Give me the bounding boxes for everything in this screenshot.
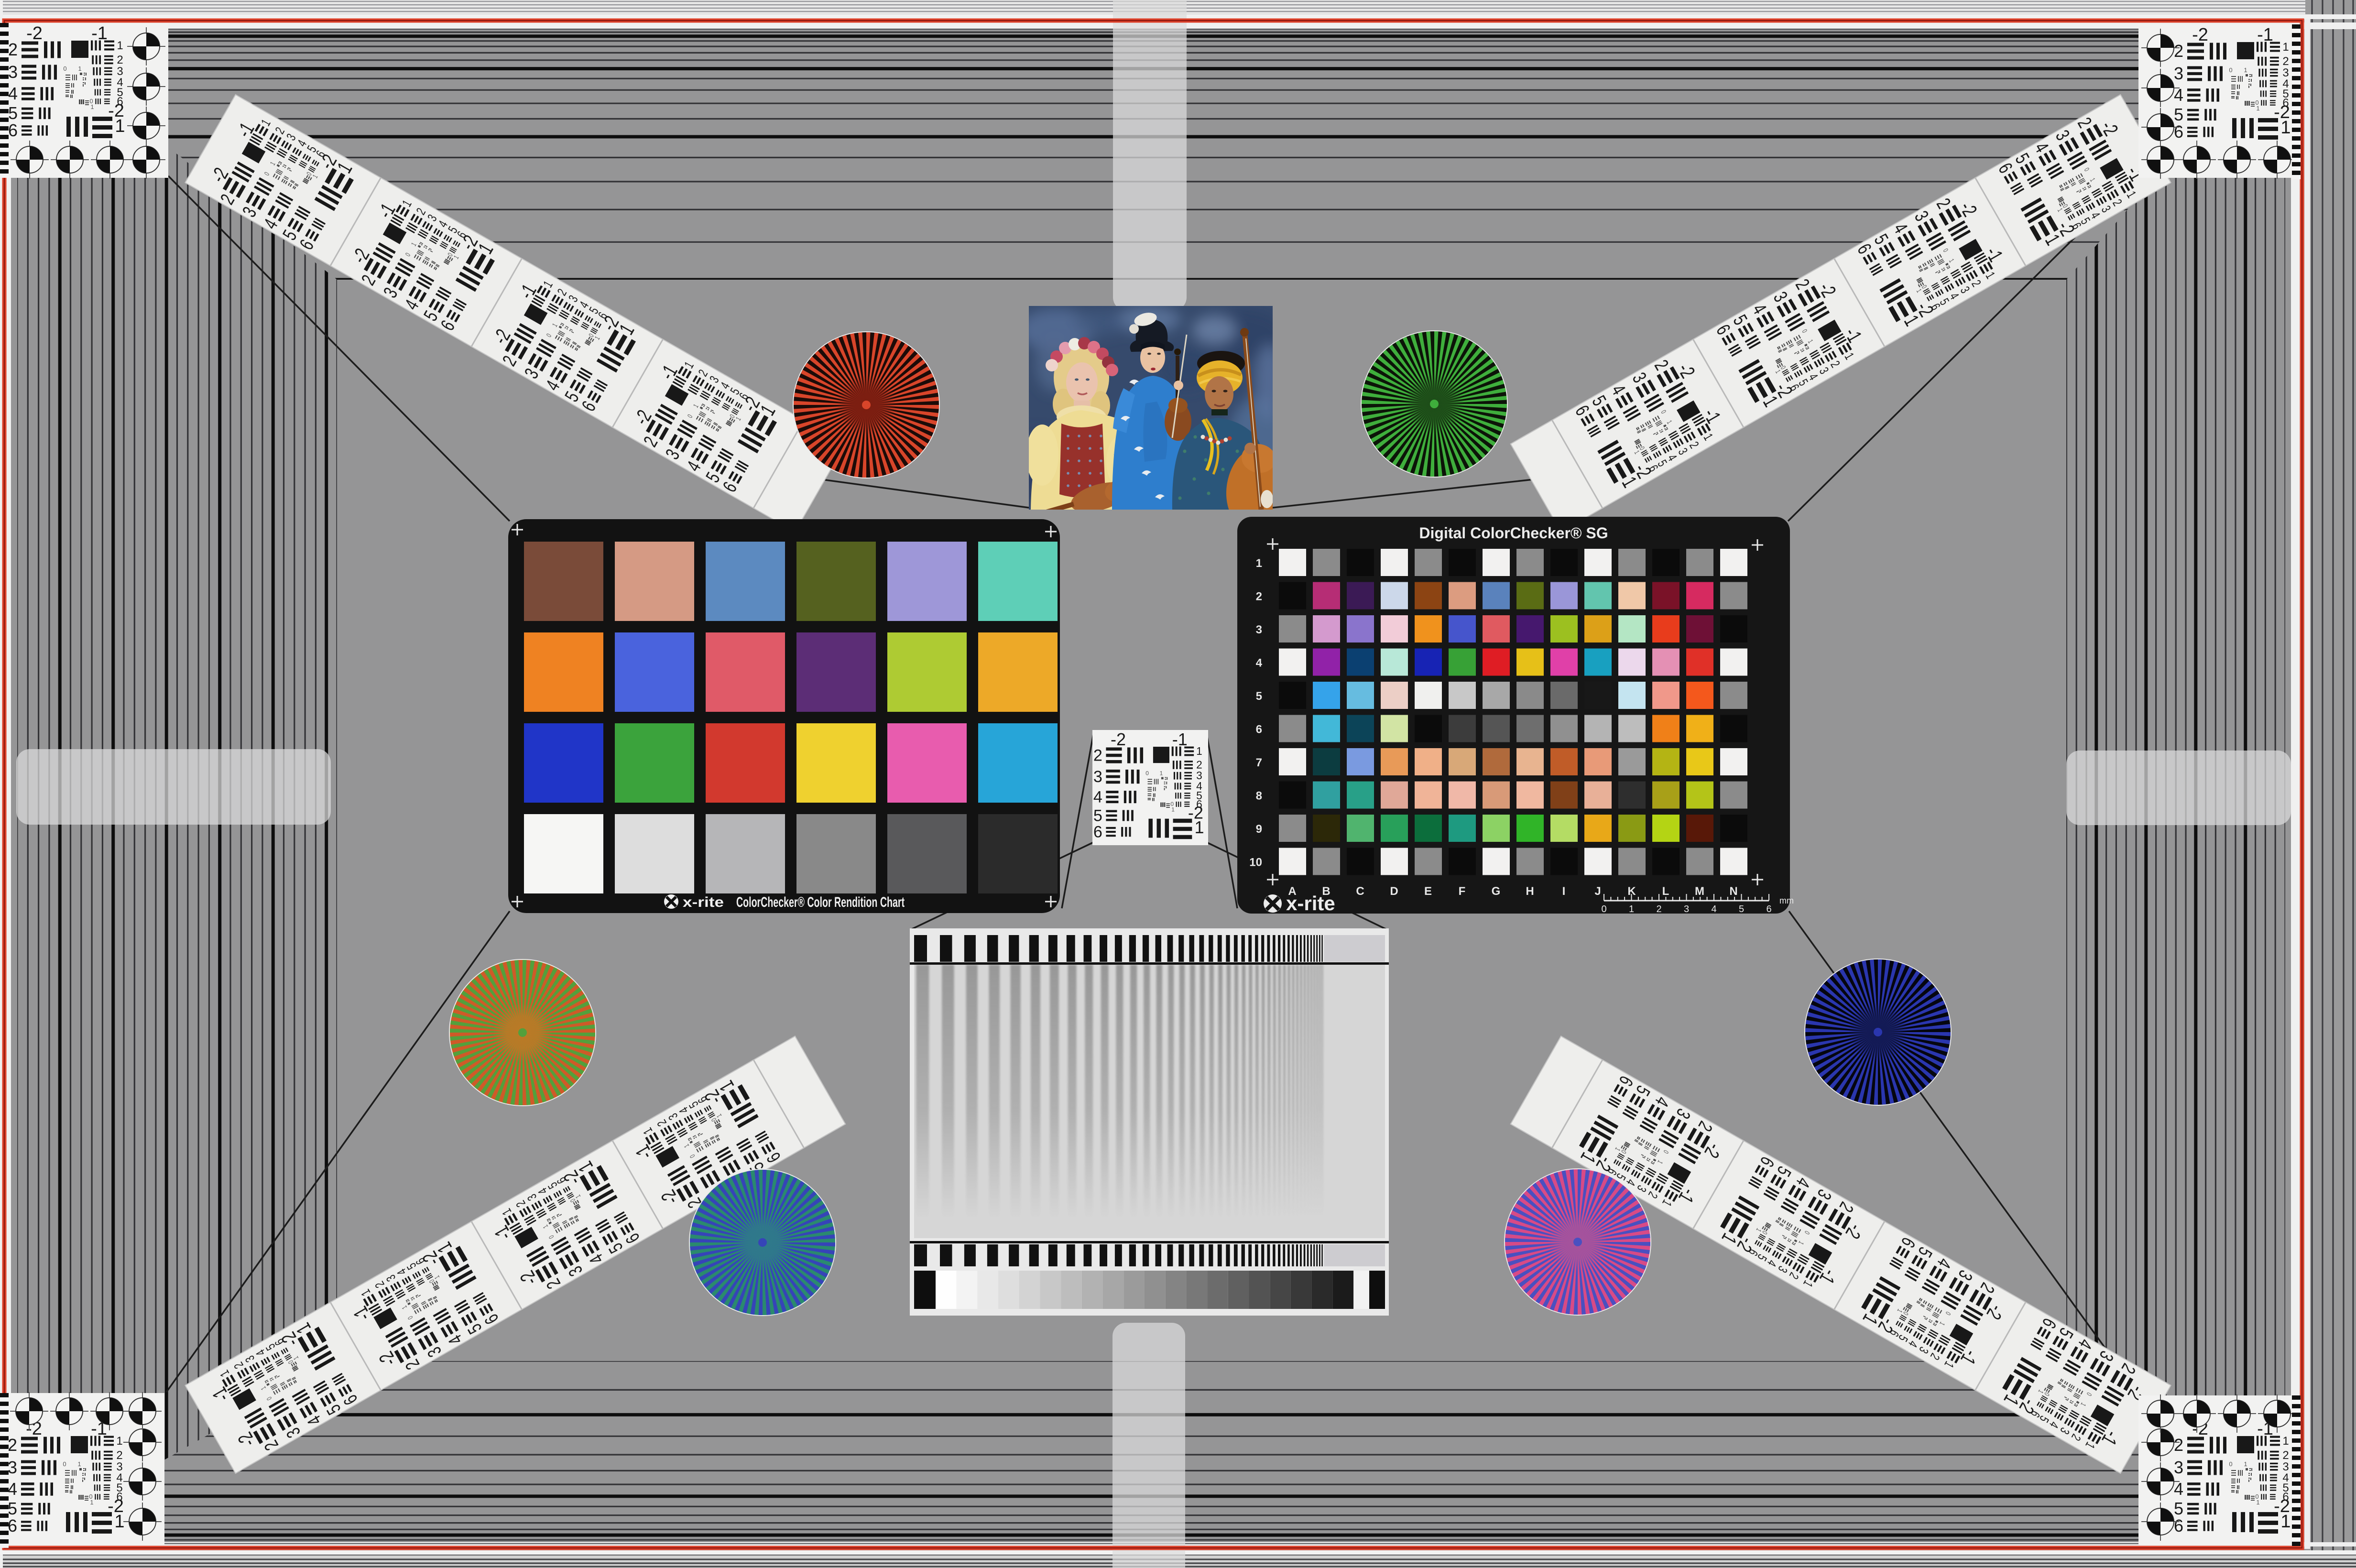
svg-text:4: 4 xyxy=(1256,657,1263,670)
svg-text:N: N xyxy=(1729,885,1737,898)
svg-text:F: F xyxy=(1459,885,1466,898)
svg-text:I: I xyxy=(1562,885,1566,898)
svg-text:5: 5 xyxy=(1739,904,1744,915)
svg-text:1: 1 xyxy=(1256,557,1262,570)
svg-text:8: 8 xyxy=(1256,790,1262,803)
svg-text:M: M xyxy=(1695,885,1704,898)
svg-text:5: 5 xyxy=(1256,690,1262,703)
svg-text:C: C xyxy=(1356,885,1364,898)
svg-text:G: G xyxy=(1492,885,1501,898)
svg-text:Digital ColorChecker® SG: Digital ColorChecker® SG xyxy=(1419,524,1608,542)
svg-text:6: 6 xyxy=(1766,904,1771,915)
svg-text:3: 3 xyxy=(1684,904,1689,915)
svg-text:1: 1 xyxy=(1629,904,1634,915)
svg-text:3: 3 xyxy=(1256,623,1262,636)
svg-text:J: J xyxy=(1594,885,1601,898)
svg-text:ColorChecker® Color Rendition: ColorChecker® Color Rendition Chart xyxy=(736,894,905,910)
svg-text:10: 10 xyxy=(1249,856,1262,869)
svg-text:2: 2 xyxy=(1256,590,1262,603)
svg-text:9: 9 xyxy=(1256,823,1262,836)
svg-text:H: H xyxy=(1526,885,1534,898)
svg-text:6: 6 xyxy=(1256,723,1262,736)
svg-text:x-rite: x-rite xyxy=(683,894,724,910)
svg-text:L: L xyxy=(1662,885,1669,898)
svg-text:2: 2 xyxy=(1656,904,1661,915)
svg-text:D: D xyxy=(1390,885,1398,898)
svg-text:4: 4 xyxy=(1711,904,1716,915)
svg-text:7: 7 xyxy=(1256,756,1262,769)
svg-text:x-rite: x-rite xyxy=(1286,892,1335,915)
svg-text:E: E xyxy=(1424,885,1432,898)
svg-text:mm: mm xyxy=(1779,896,1794,905)
svg-text:0: 0 xyxy=(1601,904,1606,915)
